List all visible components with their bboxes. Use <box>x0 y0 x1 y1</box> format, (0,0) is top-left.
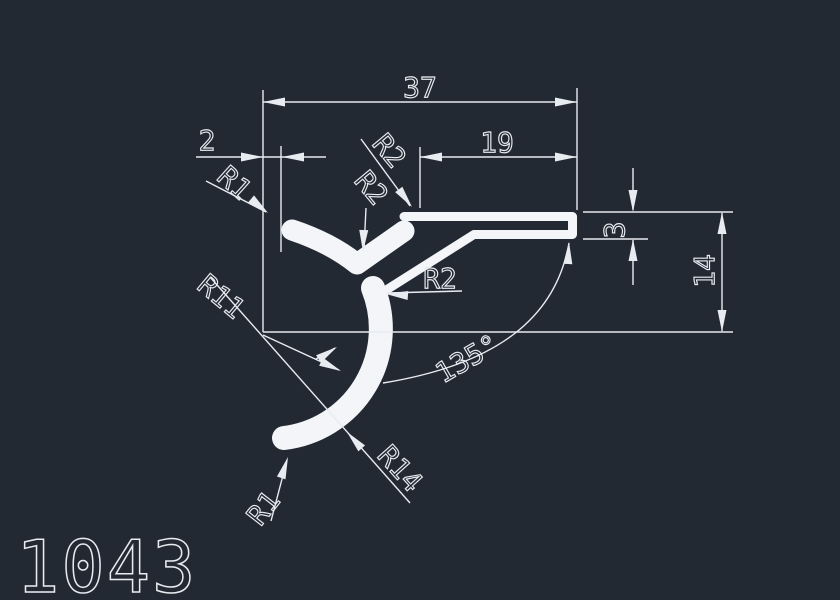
arrow-14-bottom <box>718 310 727 332</box>
arrow-2-right <box>282 153 304 162</box>
arrow-37-right <box>555 98 577 107</box>
arrow-r11 <box>319 358 343 375</box>
arrow-19-right <box>555 153 577 162</box>
dim-text-3: 3 <box>598 222 631 239</box>
dim-text-14: 14 <box>688 254 721 288</box>
dim-text-19: 19 <box>480 126 514 159</box>
arrow-r1-bottom <box>277 456 292 480</box>
dim-text-135: 135° <box>430 328 505 390</box>
arrow-r2-corner <box>395 187 415 210</box>
arrow-2-left <box>241 153 263 162</box>
dim-text-2: 2 <box>199 124 216 157</box>
cad-canvas: 37 2 19 3 14 135° R1 R2 R2 R2 R11 R14 R1… <box>0 0 840 600</box>
radius-text-r14: R14 <box>371 439 429 499</box>
profile-arm <box>292 230 404 264</box>
profile-shape <box>284 217 573 439</box>
radius-text-r2-inner: R2 <box>423 262 457 295</box>
arrow-37-left <box>263 98 285 107</box>
arrow-r1-top <box>248 195 271 216</box>
radius-text-r1-bottom: R1 <box>240 485 287 532</box>
arrow-angle-right <box>563 242 573 264</box>
dimension-labels: 37 2 19 3 14 135° R1 R2 R2 R2 R11 R14 R1 <box>191 71 721 532</box>
part-number-label: 1043 <box>16 525 197 600</box>
arrow-angle-left <box>316 343 339 363</box>
arrow-14-top <box>718 212 727 234</box>
arrow-19-left <box>420 153 442 162</box>
radius-text-r11: R11 <box>191 268 251 326</box>
dim-text-37: 37 <box>403 71 437 104</box>
cad-drawing-viewport: 37 2 19 3 14 135° R1 R2 R2 R2 R11 R14 R1… <box>0 0 840 600</box>
arrow-3-top <box>629 190 638 212</box>
arrow-3-bottom <box>629 239 638 261</box>
